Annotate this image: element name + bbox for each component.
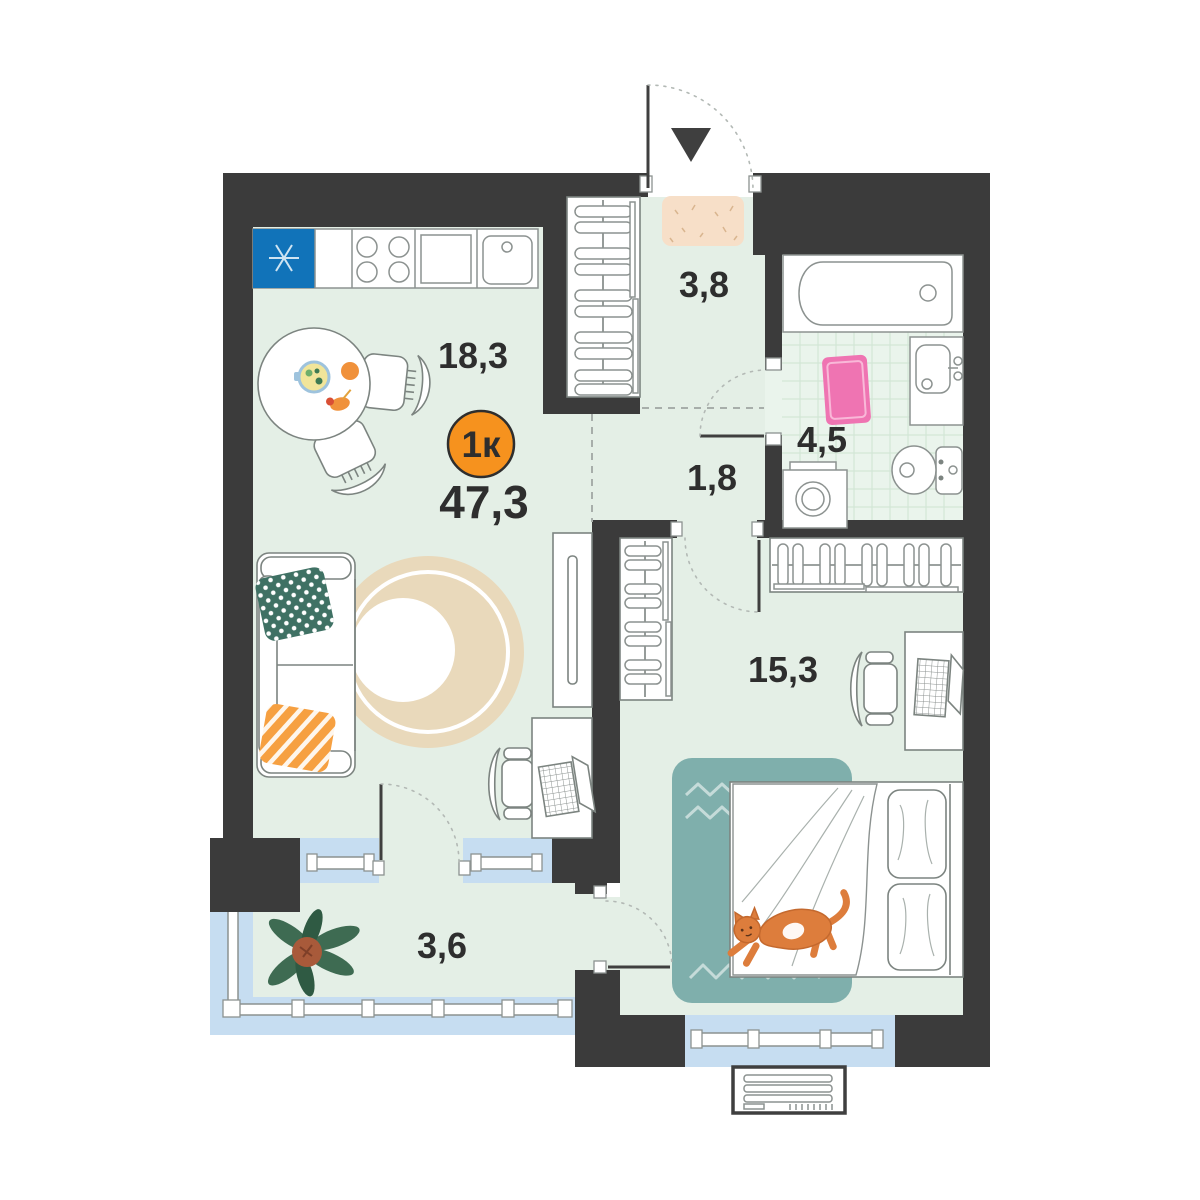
window-living-a <box>300 838 379 883</box>
floor-plan-page: 18,3 3,8 4,5 1,8 15,3 3,6 1к 47,3 <box>0 0 1200 1200</box>
desk-living <box>532 718 595 838</box>
dining-table <box>258 328 370 440</box>
area-label-balcony: 3,6 <box>417 925 467 966</box>
area-label-entry-hall: 3,8 <box>679 264 729 305</box>
floor-balcony-doorway-living <box>379 838 463 883</box>
floor-plan-svg: 18,3 3,8 4,5 1,8 15,3 3,6 1к 47,3 <box>0 0 1200 1200</box>
office-chair-living <box>489 748 533 820</box>
cabinet-living <box>553 533 592 707</box>
bathtub <box>783 255 963 332</box>
window-bedroom <box>685 1015 895 1067</box>
window-living-b <box>463 838 552 883</box>
apartment-type-label: 1к <box>461 424 501 465</box>
bath-mat <box>822 354 872 425</box>
bathroom-sink <box>910 337 963 425</box>
area-label-bathroom: 4,5 <box>797 419 847 460</box>
kitchen-sink-icon <box>483 236 532 284</box>
living-rug <box>332 556 524 748</box>
pillow-orange <box>258 702 337 773</box>
orange-fruit-icon <box>341 362 359 380</box>
area-label-hallway: 1,8 <box>687 457 737 498</box>
floor-bedroom-doorway <box>677 520 757 538</box>
total-area-label: 47,3 <box>439 476 529 528</box>
washing-machine <box>783 462 847 528</box>
desk-bedroom <box>905 632 964 750</box>
area-label-bedroom: 15,3 <box>748 649 818 690</box>
apartment-type-badge: 1к <box>448 411 514 477</box>
bed <box>721 782 963 977</box>
wardrobe-bedroom-top <box>770 538 963 592</box>
floor-hallway <box>567 414 640 522</box>
area-label-kitchen-living: 18,3 <box>438 335 508 376</box>
wardrobe-entry <box>567 197 640 397</box>
kitchen-counter <box>253 229 538 288</box>
toilet <box>892 446 962 494</box>
entrance-arrow-icon <box>671 128 711 162</box>
wardrobe-bedroom-left <box>620 538 672 700</box>
ac-unit <box>733 1067 845 1113</box>
laptop-icon <box>914 653 964 718</box>
sofa <box>254 553 355 777</box>
doormat <box>662 196 744 246</box>
